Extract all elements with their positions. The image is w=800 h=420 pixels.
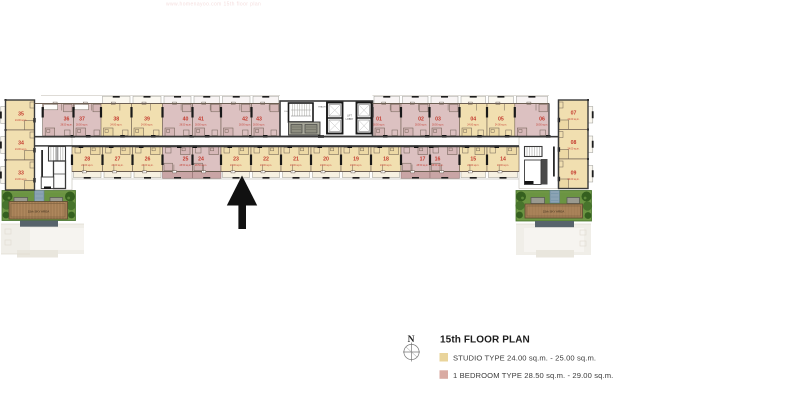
svg-text:20: 20 bbox=[323, 157, 329, 163]
svg-text:06: 06 bbox=[539, 116, 545, 122]
svg-text:18: 18 bbox=[383, 157, 389, 163]
svg-text:24.00 sq.m.: 24.00 sq.m. bbox=[141, 125, 153, 127]
svg-text:19: 19 bbox=[353, 157, 359, 163]
svg-text:24.00 sq.m.: 24.00 sq.m. bbox=[567, 148, 579, 150]
svg-text:28.50 sq.m.: 28.50 sq.m. bbox=[416, 165, 428, 167]
svg-text:09: 09 bbox=[571, 171, 577, 177]
svg-text:24.00 sq.m.: 24.00 sq.m. bbox=[230, 165, 242, 167]
svg-text:27: 27 bbox=[115, 157, 121, 163]
svg-text:28.50 sq.m.: 28.50 sq.m. bbox=[373, 125, 385, 127]
svg-text:24.00 sq.m.: 24.00 sq.m. bbox=[141, 165, 153, 167]
svg-text:24.00 sq.m.: 24.00 sq.m. bbox=[467, 125, 479, 127]
svg-text:33: 33 bbox=[18, 171, 24, 177]
svg-text:03: 03 bbox=[435, 116, 441, 122]
svg-text:40: 40 bbox=[183, 116, 189, 122]
svg-text:28.50 sq.m.: 28.50 sq.m. bbox=[415, 125, 427, 127]
svg-text:14: 14 bbox=[500, 157, 506, 163]
svg-text:36: 36 bbox=[64, 116, 70, 122]
svg-text:24.00 sq.m.: 24.00 sq.m. bbox=[567, 179, 579, 181]
svg-text:1 BEDROOM TYPE 28.50 sq.m. - 2: 1 BEDROOM TYPE 28.50 sq.m. - 29.00 sq.m. bbox=[453, 371, 613, 380]
svg-text:24.00 sq.m.: 24.00 sq.m. bbox=[567, 119, 579, 121]
svg-text:24.00 sq.m.: 24.00 sq.m. bbox=[320, 165, 332, 167]
svg-text:37: 37 bbox=[79, 116, 85, 122]
svg-text:28.50 sq.m.: 28.50 sq.m. bbox=[179, 165, 191, 167]
svg-text:24.00 sq.m.: 24.00 sq.m. bbox=[15, 149, 27, 151]
svg-text:23: 23 bbox=[233, 157, 239, 163]
svg-text:28.50 sq.m.: 28.50 sq.m. bbox=[432, 125, 444, 127]
svg-text:28.50 sq.m.: 28.50 sq.m. bbox=[195, 165, 207, 167]
svg-text:26: 26 bbox=[145, 157, 151, 163]
svg-text:24.00 sq.m.: 24.00 sq.m. bbox=[260, 165, 272, 167]
svg-text:28.50 sq.m.: 28.50 sq.m. bbox=[60, 125, 72, 127]
svg-text:24.00 sq.m.: 24.00 sq.m. bbox=[497, 165, 509, 167]
svg-text:28.50 sq.m.: 28.50 sq.m. bbox=[179, 125, 191, 127]
svg-text:43: 43 bbox=[256, 116, 262, 122]
svg-text:38: 38 bbox=[113, 116, 119, 122]
svg-text:28: 28 bbox=[84, 157, 90, 163]
svg-text:LOBBY: LOBBY bbox=[346, 119, 354, 121]
svg-text:24.00 sq.m.: 24.00 sq.m. bbox=[467, 165, 479, 167]
svg-text:24.00 sq.m.: 24.00 sq.m. bbox=[15, 120, 27, 122]
svg-text:24.00 sq.m.: 24.00 sq.m. bbox=[111, 165, 123, 167]
svg-text:21: 21 bbox=[293, 157, 299, 163]
svg-text:24: 24 bbox=[198, 157, 204, 163]
svg-text:24.00 sq.m.: 24.00 sq.m. bbox=[81, 165, 93, 167]
svg-text:22: 22 bbox=[263, 157, 269, 163]
svg-text:41: 41 bbox=[198, 116, 204, 122]
svg-text:17: 17 bbox=[420, 157, 426, 163]
svg-text:28.50 sq.m.: 28.50 sq.m. bbox=[253, 125, 265, 127]
svg-text:28.50 sq.m.: 28.50 sq.m. bbox=[76, 125, 88, 127]
svg-text:07: 07 bbox=[571, 111, 577, 117]
svg-text:28.50 sq.m.: 28.50 sq.m. bbox=[431, 165, 443, 167]
svg-text:24.00 sq.m.: 24.00 sq.m. bbox=[290, 165, 302, 167]
svg-text:15: 15 bbox=[470, 157, 476, 163]
svg-text:04: 04 bbox=[470, 116, 476, 122]
svg-text:www.homenayoo.com 15th floor p: www.homenayoo.com 15th floor plan bbox=[166, 2, 261, 8]
svg-text:15th SKY AREA: 15th SKY AREA bbox=[28, 209, 49, 213]
svg-text:01: 01 bbox=[376, 116, 382, 122]
svg-text:28.50 sq.m.: 28.50 sq.m. bbox=[195, 125, 207, 127]
svg-text:15th SKY AREA: 15th SKY AREA bbox=[543, 210, 564, 214]
svg-text:TRASH: TRASH bbox=[318, 106, 326, 109]
svg-text:24.00 sq.m.: 24.00 sq.m. bbox=[15, 179, 27, 181]
svg-text:24.00 sq.m.: 24.00 sq.m. bbox=[350, 165, 362, 167]
svg-text:24.00 sq.m.: 24.00 sq.m. bbox=[495, 125, 507, 127]
svg-text:34: 34 bbox=[18, 141, 24, 147]
svg-text:STUDIO TYPE 24.00 sq.m. - 25.0: STUDIO TYPE 24.00 sq.m. - 25.00 sq.m. bbox=[453, 354, 596, 363]
svg-text:39: 39 bbox=[144, 116, 150, 122]
svg-text:08: 08 bbox=[571, 140, 577, 146]
svg-text:05: 05 bbox=[498, 116, 504, 122]
svg-text:42: 42 bbox=[242, 116, 248, 122]
svg-text:N: N bbox=[408, 335, 415, 345]
svg-text:28.50 sq.m.: 28.50 sq.m. bbox=[536, 125, 548, 127]
svg-text:LIFT: LIFT bbox=[347, 116, 352, 118]
svg-text:28.50 sq.m.: 28.50 sq.m. bbox=[239, 125, 251, 127]
svg-text:02: 02 bbox=[418, 116, 424, 122]
svg-text:24.00 sq.m.: 24.00 sq.m. bbox=[110, 125, 122, 127]
svg-text:35: 35 bbox=[18, 112, 24, 118]
svg-text:25: 25 bbox=[183, 157, 189, 163]
svg-text:F.H.: F.H. bbox=[285, 111, 289, 113]
svg-text:15th FLOOR PLAN: 15th FLOOR PLAN bbox=[440, 335, 530, 346]
svg-text:16: 16 bbox=[435, 157, 441, 163]
svg-text:24.00 sq.m.: 24.00 sq.m. bbox=[380, 165, 392, 167]
